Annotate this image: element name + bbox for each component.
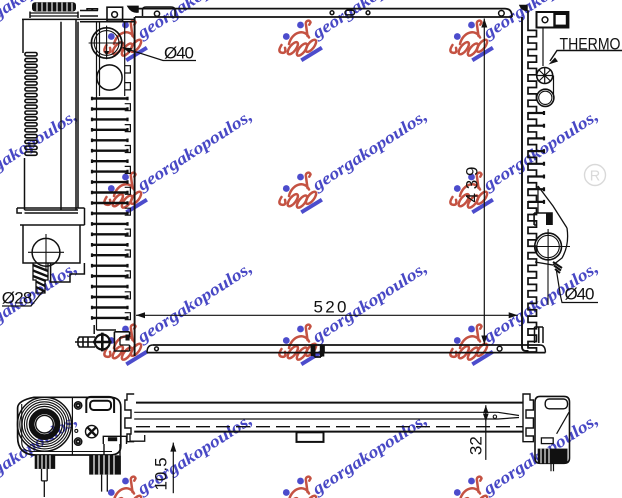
- svg-text:Ø40: Ø40: [164, 43, 194, 62]
- svg-text:R: R: [590, 169, 600, 185]
- svg-text:10.5: 10.5: [152, 457, 171, 490]
- svg-text:THERMO: THERMO: [560, 35, 621, 54]
- svg-text:439: 439: [463, 167, 482, 203]
- svg-text:32: 32: [467, 436, 486, 455]
- svg-text:520: 520: [314, 297, 347, 316]
- svg-text:Ø28: Ø28: [2, 289, 33, 308]
- svg-text:Ø40: Ø40: [565, 285, 595, 304]
